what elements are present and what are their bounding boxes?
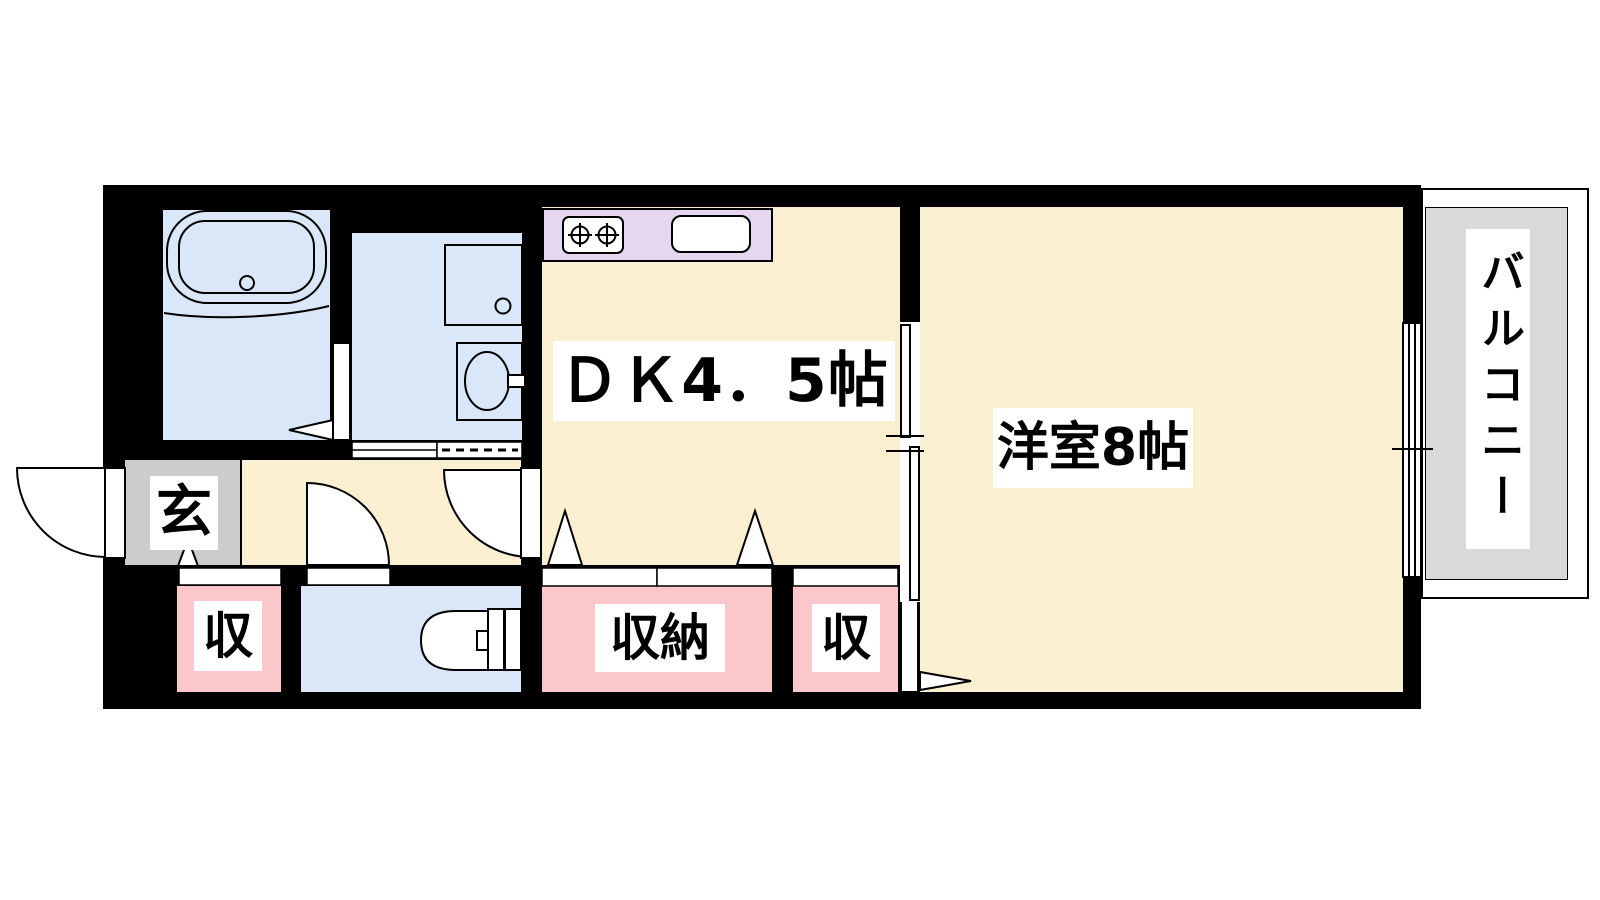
closet-left-door	[179, 568, 281, 585]
label-closet-left: 収	[194, 601, 262, 671]
entrance-door-swing	[17, 468, 125, 558]
label-entrance: 玄	[150, 476, 218, 550]
floorplan-canvas: ＤＫ4．5帖 洋室8帖 玄 収 収納 収 バルコニー	[0, 0, 1600, 900]
label-balcony: バルコニー	[1466, 229, 1530, 549]
stove-icon	[563, 217, 623, 253]
kitchen-sink-icon	[672, 216, 750, 252]
toilet-doorway	[307, 568, 390, 585]
label-closet-right: 収	[812, 604, 880, 672]
washroom-doors	[352, 442, 522, 458]
label-closet-center: 収納	[595, 604, 725, 672]
label-western-room: 洋室8帖	[993, 408, 1193, 488]
label-dk: ＤＫ4．5帖	[553, 341, 895, 421]
closet-center-doors	[542, 511, 773, 586]
bathtub-icon	[164, 211, 329, 317]
dk-door-swing	[444, 468, 541, 558]
bathroom-folding-door	[289, 343, 350, 440]
toilet-door-swing	[307, 483, 389, 565]
washing-machine-pan-icon	[445, 245, 522, 325]
vanity-sink-icon	[457, 343, 525, 420]
fixtures-overlay	[0, 0, 1600, 900]
balcony-window	[1392, 323, 1433, 577]
toilet-icon	[421, 609, 521, 670]
